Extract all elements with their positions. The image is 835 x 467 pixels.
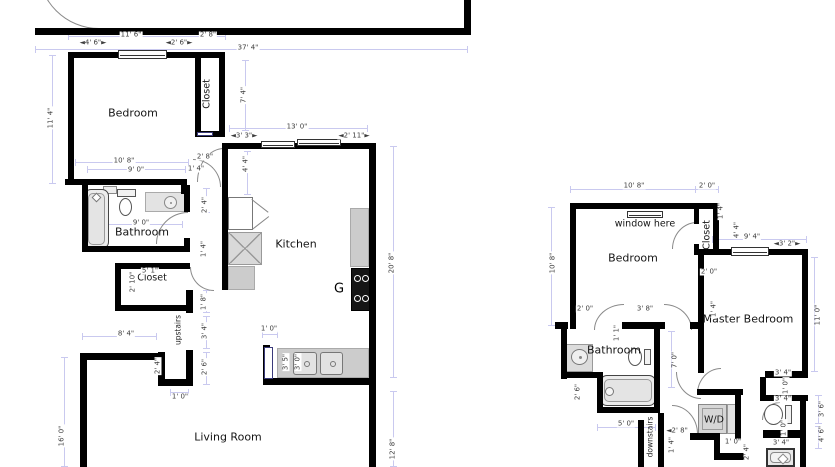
wall <box>80 353 87 467</box>
dimension-label: 11' 4" <box>48 107 55 130</box>
dimension-label: 9' 0" <box>132 220 150 227</box>
dimension-line <box>185 166 186 173</box>
window-symbol <box>731 247 769 256</box>
dimension-label: 1' 0" <box>171 394 189 401</box>
sink-basin-icon <box>571 349 588 365</box>
stove-burner-icon <box>354 275 361 282</box>
dimension-line <box>262 334 277 335</box>
wall <box>638 420 644 467</box>
dimension-label: 1' 0" <box>724 439 742 446</box>
dimension-label: 7' 4" <box>241 86 248 104</box>
dimension-line <box>156 333 157 340</box>
dimension-label: 11' 0" <box>815 304 822 327</box>
dimension-label: 7' 0" <box>672 351 679 369</box>
dimension-label: 4' 4" <box>243 155 250 173</box>
room-label: Bedroom <box>608 253 658 264</box>
wall <box>115 305 190 311</box>
dimension-label: 2' 8" <box>196 154 214 161</box>
stove-burner-icon <box>362 295 369 302</box>
door-jamb <box>197 132 213 136</box>
wall <box>735 389 741 440</box>
dimension-line <box>811 371 818 372</box>
dimension-line <box>806 236 807 243</box>
dimension-label: 2' 4" <box>155 357 162 375</box>
wall <box>219 52 225 137</box>
wall <box>622 322 665 329</box>
dimension-label: 8' 4" <box>117 331 135 338</box>
dimension-label: 2' 4" <box>202 196 209 214</box>
wall <box>555 322 568 329</box>
dimension-line <box>548 207 555 208</box>
dimension-label: 5' 0" <box>617 421 635 428</box>
dimension-line <box>811 257 818 258</box>
dimension-line <box>82 333 83 340</box>
dimension-label: 1' 4" <box>718 202 725 220</box>
wall <box>115 263 121 311</box>
dimension-label: 1' 1" <box>614 324 621 342</box>
dimension-line <box>35 46 36 53</box>
dimension-line <box>203 384 210 385</box>
sink-basin-icon <box>770 452 791 463</box>
dimension-label: 1' 0" <box>260 326 278 333</box>
dimension-label: 3' 5" <box>283 353 290 371</box>
dimension-line <box>49 55 56 56</box>
dimension-label: ◄2' 6"► <box>164 40 193 47</box>
door-swing-arc <box>664 304 692 330</box>
dimension-label: 3' 4" <box>772 440 790 447</box>
dimension-label: 9' 0" <box>127 167 145 174</box>
wall <box>690 433 720 440</box>
dimension-label: 2' 10" <box>130 271 137 294</box>
wall <box>186 290 193 313</box>
dimension-label: 1' 8" <box>201 293 208 311</box>
dimension-label: 1' 4" <box>201 240 208 258</box>
dimension-label: 3' 6" <box>819 400 826 418</box>
dimension-line <box>75 159 76 166</box>
dimension-line <box>668 387 675 388</box>
dimension-label: 37' 4" <box>237 45 260 52</box>
dimension-line <box>570 186 571 193</box>
sink-fixture <box>145 192 186 212</box>
dimension-label: 1' 4" <box>669 436 676 454</box>
wall <box>184 238 190 252</box>
wall <box>654 329 660 413</box>
room-label: Bathroom <box>115 227 169 238</box>
dimension-line <box>203 348 210 349</box>
room-label: G <box>334 283 344 296</box>
dimension-label: 13' 0" <box>286 124 309 131</box>
dimension-label: 9' 4" <box>743 234 761 241</box>
toilet-fixture <box>116 189 139 218</box>
dimension-line <box>815 423 822 424</box>
dimension-line <box>815 395 822 396</box>
sink-basin-right <box>320 352 344 375</box>
dimension-line <box>61 357 68 358</box>
dimension-label: 3' 8" <box>636 306 654 313</box>
room-label: W/D <box>704 415 724 425</box>
dimension-label: ◄2' 11"► <box>337 133 371 140</box>
dimension-label: 1' 4" <box>711 300 718 318</box>
dimension-label: ◄3' 3"► <box>229 133 258 140</box>
bathtub-fixture <box>600 375 656 406</box>
stove-fixture <box>351 268 370 311</box>
room-label: Bedroom <box>108 108 158 119</box>
wall <box>802 255 808 377</box>
dimension-line <box>203 188 210 189</box>
counter-fixture <box>350 208 369 267</box>
dimension-line <box>467 46 468 53</box>
stove-burner-icon <box>362 275 369 282</box>
dimension-label: 2' 0" <box>698 183 716 190</box>
window-symbol <box>261 141 295 148</box>
dimension-label: 4' 6" <box>819 425 826 443</box>
wall <box>222 143 228 290</box>
dimension-line <box>668 331 675 332</box>
dimension-label: 16' 0" <box>59 425 66 448</box>
wall <box>184 185 190 212</box>
wall <box>82 246 190 252</box>
dimension-line <box>718 186 719 193</box>
dimension-label: 4' 4" <box>734 221 741 239</box>
sink-fixture <box>766 448 795 467</box>
wall <box>35 28 471 35</box>
wall <box>597 407 660 413</box>
dimension-label: 3' 4" <box>774 396 792 403</box>
room-label: Living Room <box>194 432 262 443</box>
dimension-line <box>64 357 65 466</box>
dimension-line <box>87 166 88 173</box>
window-symbol <box>297 139 341 146</box>
stove-burner-icon <box>354 295 361 302</box>
room-label: Closet <box>202 79 212 109</box>
room-label: Kitchen <box>275 239 316 250</box>
toilet-tank <box>644 349 651 365</box>
window-symbol <box>118 50 167 59</box>
wall <box>263 378 376 385</box>
dishwasher-fixture <box>228 232 262 265</box>
dimension-label: 2' 6" <box>202 358 209 376</box>
window-symbol <box>627 211 663 218</box>
toilet-bowl <box>119 198 132 216</box>
dimension-line <box>655 424 656 431</box>
dimension-line <box>49 183 56 184</box>
dimension-line <box>390 377 397 378</box>
dimension-label: 10' 8" <box>550 252 557 275</box>
toilet-tank <box>117 189 136 197</box>
refrigerator-fixture <box>228 197 253 230</box>
room-label: window here <box>615 219 675 229</box>
dimension-label: ◄3' 2"► <box>772 241 801 248</box>
dimension-label: 2' 4" <box>744 443 751 461</box>
door-jamb <box>264 347 273 379</box>
room-label: Bathroom <box>587 345 641 356</box>
wall <box>714 453 744 460</box>
dimension-label: 2' 0" <box>576 306 594 313</box>
dimension-label: 2' 6" <box>575 383 582 401</box>
wall <box>195 52 201 137</box>
dimension-line <box>548 325 555 326</box>
sink-basin-icon <box>164 196 177 209</box>
dimension-label: 10' 8" <box>623 183 646 190</box>
dimension-line <box>815 448 822 449</box>
dimension-label: 12' 8" <box>390 438 397 461</box>
dimension-label: 2' 8" <box>199 32 217 39</box>
dimension-label: 1' 4" <box>187 166 205 173</box>
wall <box>694 209 699 224</box>
dimension-line <box>597 424 598 431</box>
dimension-line <box>203 312 210 313</box>
wall <box>68 52 74 185</box>
wall <box>82 185 88 252</box>
dimension-label: 3' 4" <box>202 322 209 340</box>
wall <box>658 413 664 467</box>
dimension-label: 11' 6" <box>120 32 143 39</box>
wall <box>369 143 376 467</box>
dimension-label: ◄4' 6"► <box>78 40 107 47</box>
dimension-line <box>390 391 397 392</box>
faucet-icon <box>605 387 614 396</box>
dimension-label: 10' 8" <box>113 158 136 165</box>
counter-fixture <box>228 266 255 290</box>
dimension-line <box>203 316 210 317</box>
room-label: upstairs <box>174 315 182 345</box>
dimension-label: 2' 0" <box>700 269 718 276</box>
room-label: Closet <box>702 220 712 250</box>
dimension-line <box>390 146 397 147</box>
wall <box>690 322 699 329</box>
dimension-label: 1' 0" <box>783 377 790 395</box>
dimension-label: 3' 0" <box>295 353 302 371</box>
dimension-label: ◄2' 8" <box>665 428 689 435</box>
dimension-line <box>242 60 249 61</box>
dimension-line <box>695 186 696 193</box>
dimension-label: 1' 0" <box>781 419 788 437</box>
dimension-line <box>244 194 251 195</box>
room-label: downstairs <box>646 417 654 458</box>
dimension-label: 20' 8" <box>389 252 396 275</box>
dimension-label: 5' 1" <box>141 268 159 275</box>
floorplan-canvas: BedroomClosetBathroomClosetKitchenGupsta… <box>0 0 835 467</box>
room-label: Closet <box>137 273 167 283</box>
dimension-line <box>244 151 251 152</box>
dimension-label: 3' 4" <box>774 370 792 377</box>
wall <box>80 353 160 360</box>
wall <box>464 0 471 30</box>
dimension-line <box>203 352 210 353</box>
